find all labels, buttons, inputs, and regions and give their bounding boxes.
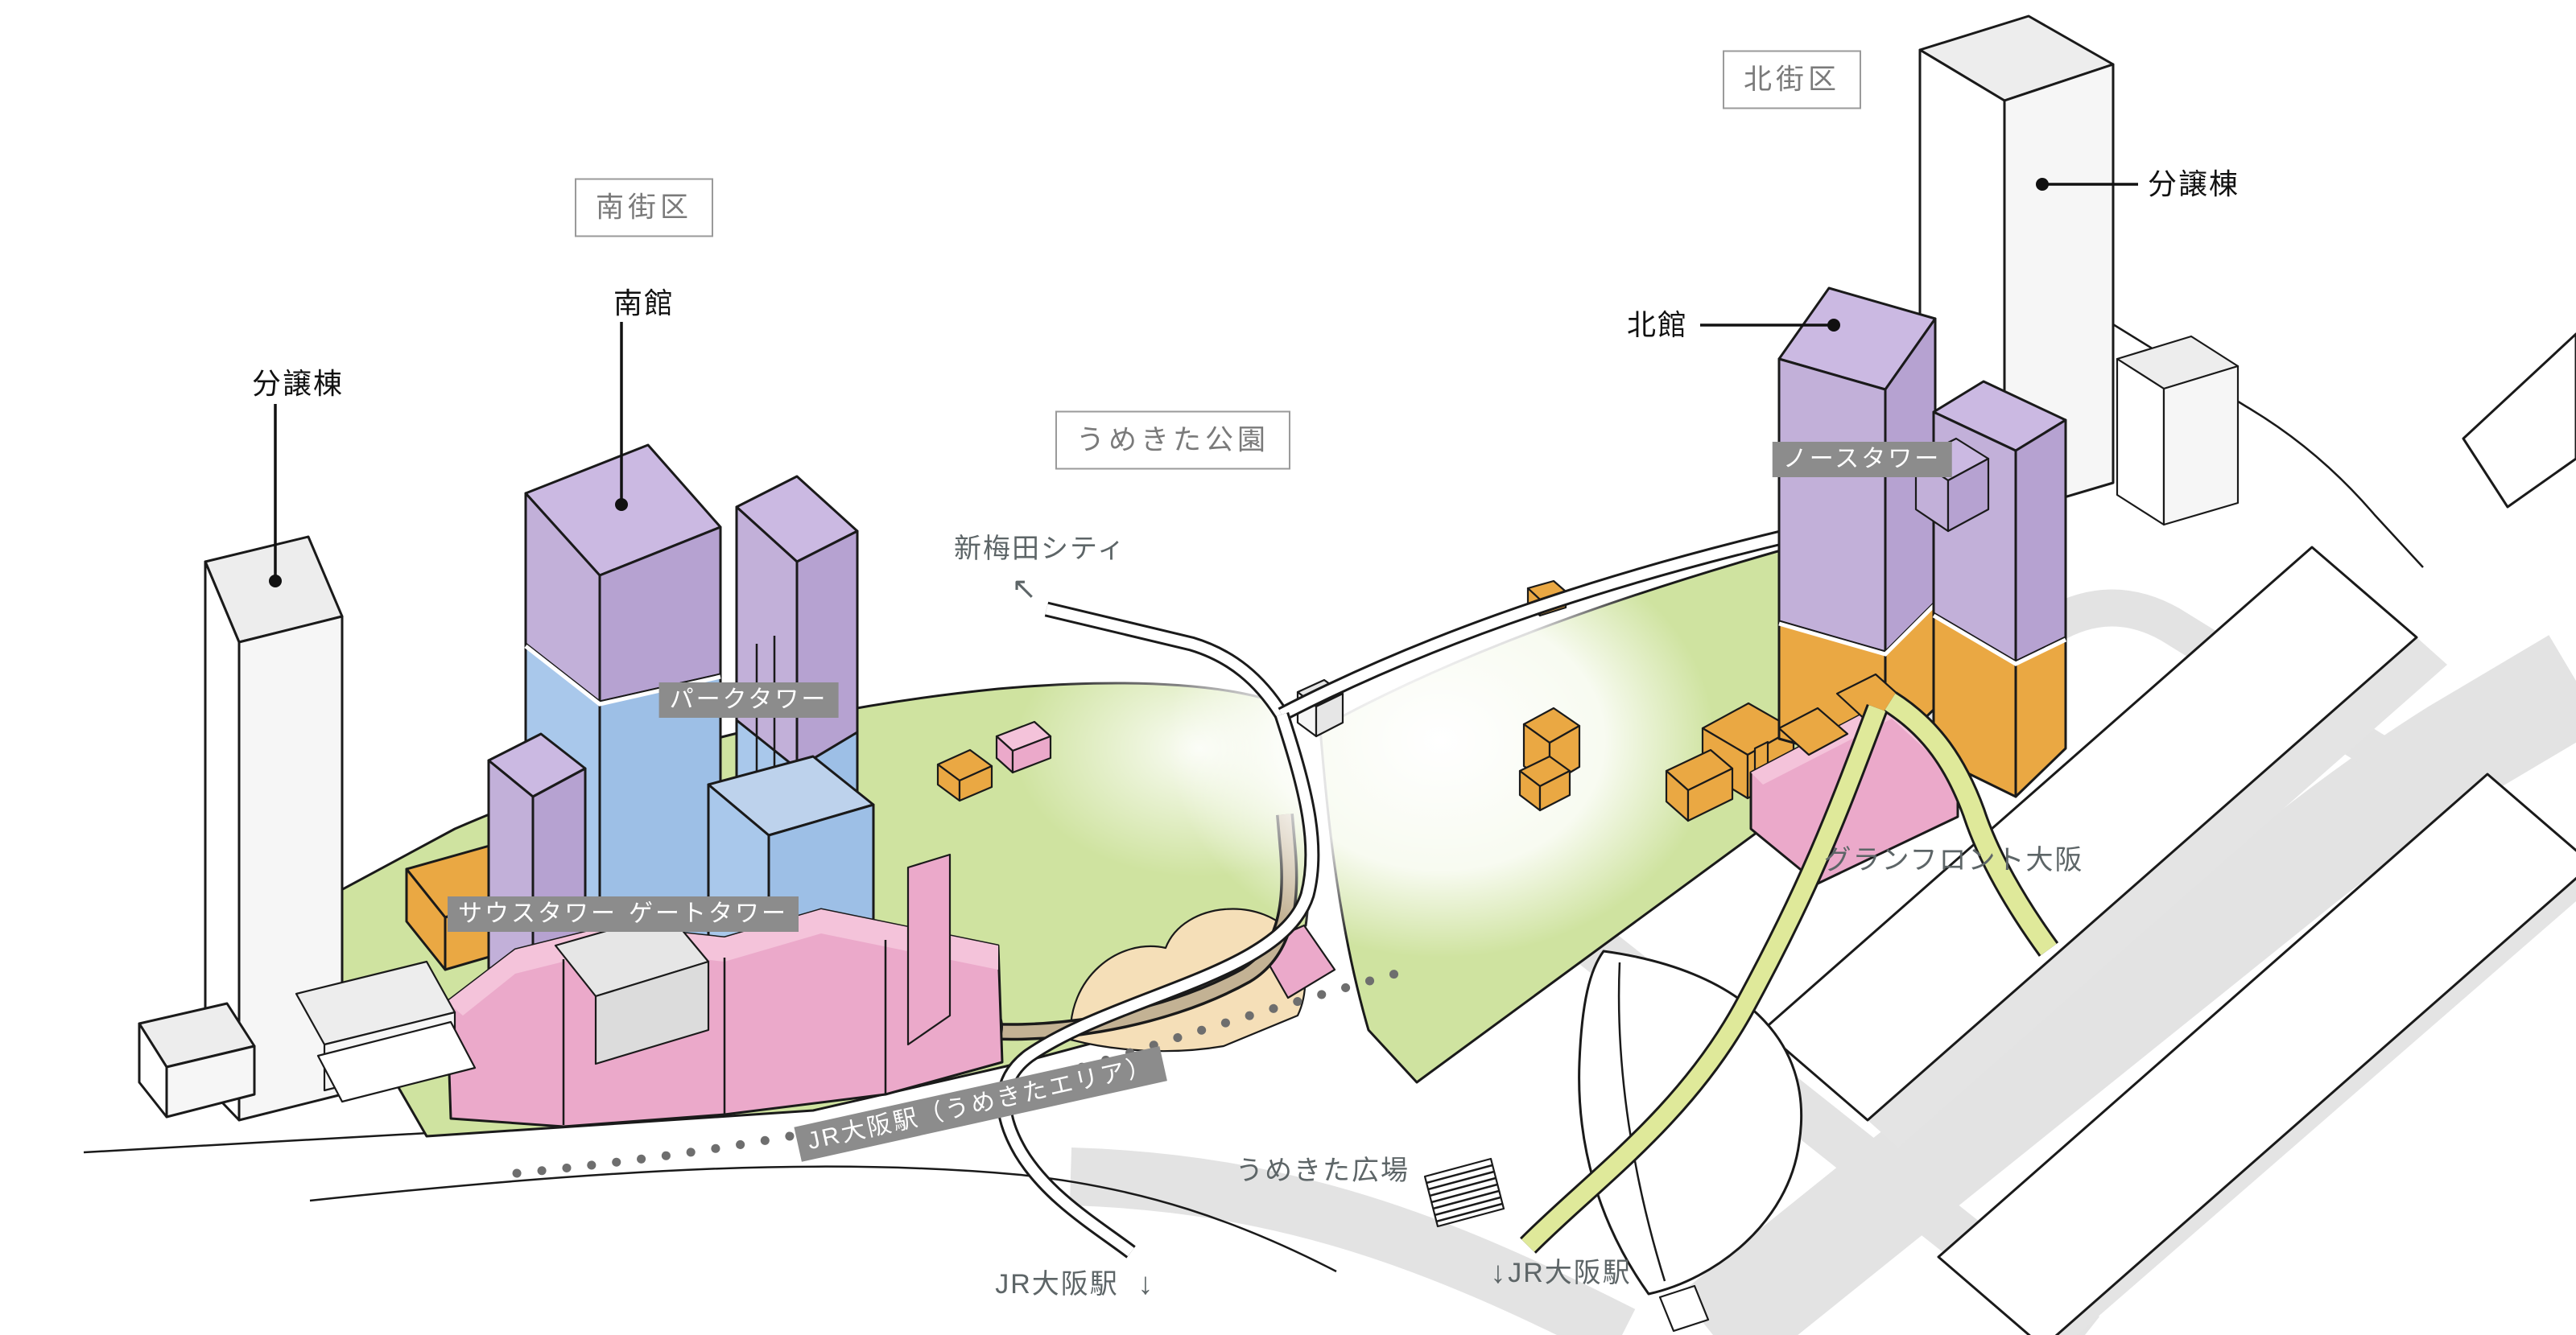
label-gate-tower: ゲートタワー <box>618 896 799 932</box>
label-grand-front: グランフロント大阪 <box>1824 847 2084 874</box>
label-umekita-plaza: うめきた広場 <box>1236 1157 1410 1185</box>
label-south-tower: サウスタワー <box>448 896 628 932</box>
jr-osaka-right-arrow-icon: ↓ <box>1491 1258 1508 1288</box>
label-condo-left: 分譲棟 <box>252 369 344 398</box>
label-north-block: 北街区 <box>1723 51 1861 109</box>
stairs-icon <box>1425 1159 1504 1226</box>
low-building-left <box>139 1003 254 1117</box>
site-map-illustration: 南街区 北街区 うめきた公園 分譲棟 南館 北館 分譲棟 パークタワー サウスタ… <box>0 0 2576 1335</box>
label-jr-osaka-left: JR大阪駅 <box>995 1271 1119 1298</box>
jr-osaka-left-arrow-icon: ↓ <box>1138 1269 1155 1300</box>
label-condo-right: 分譲棟 <box>2148 170 2240 199</box>
label-south-bldg: 南館 <box>613 289 675 318</box>
label-south-block: 南街区 <box>575 179 713 237</box>
shin-umeda-arrow-icon: ↖ <box>1011 574 1038 604</box>
label-north-tower: ノースタワー <box>1773 442 1952 477</box>
side-building-right <box>2117 336 2238 525</box>
label-shin-umeda: 新梅田シティ <box>954 535 1126 562</box>
label-umekita-park: うめきた公園 <box>1055 411 1290 470</box>
label-north-bldg: 北館 <box>1627 311 1688 340</box>
label-jr-osaka-right: JR大阪駅 <box>1508 1259 1632 1287</box>
label-park-tower: パークタワー <box>659 682 839 718</box>
